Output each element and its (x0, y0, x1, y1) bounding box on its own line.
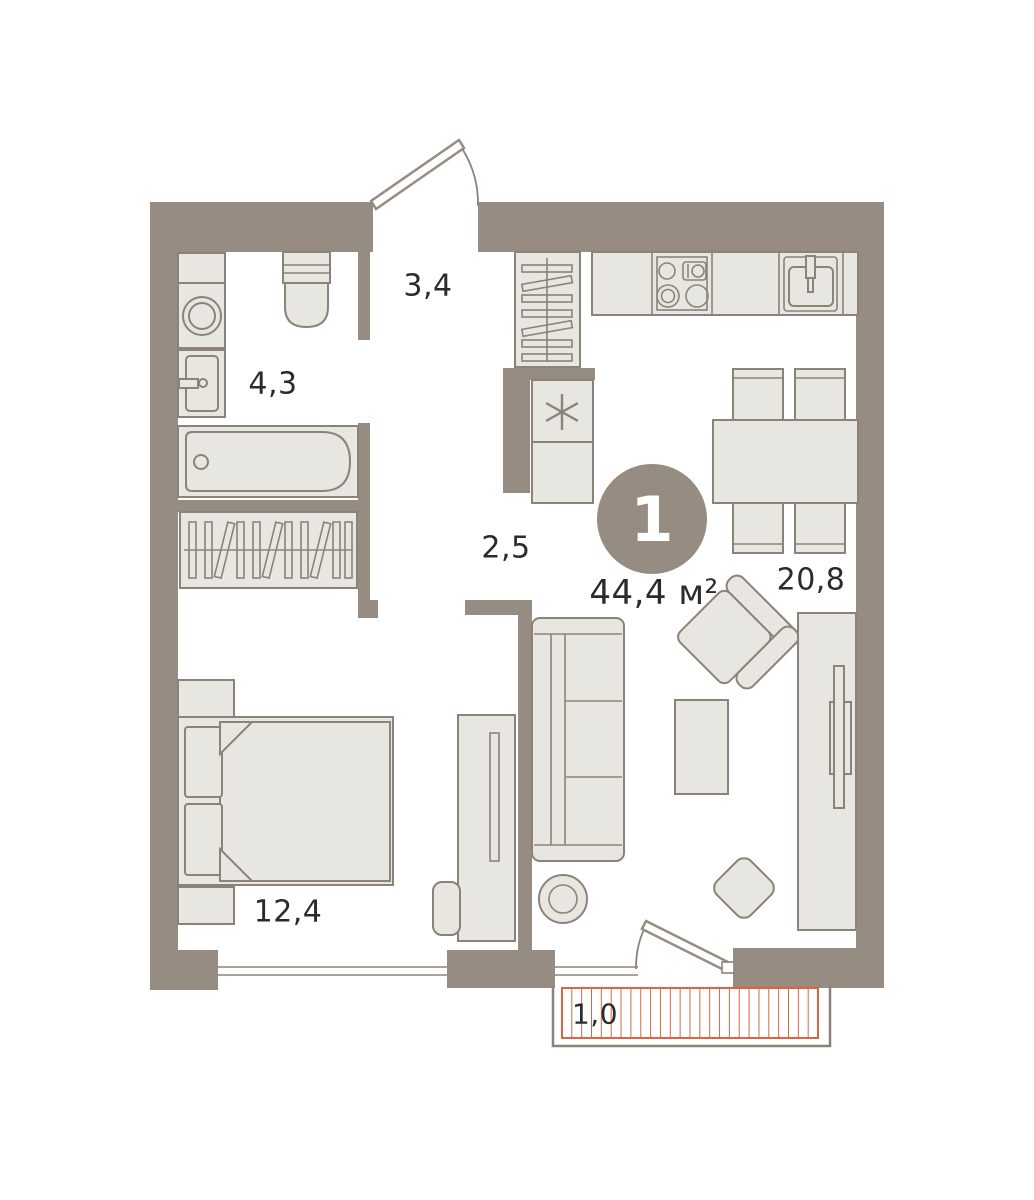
room-label-kitchen-living: 20,8 (777, 563, 846, 598)
pouf (710, 854, 778, 922)
room-count-number: 1 (630, 483, 673, 556)
sofa (532, 618, 624, 861)
room-count-badge: 1 (597, 464, 707, 574)
side-table (539, 875, 587, 923)
bathroom-cabinet (178, 253, 225, 283)
bed (178, 717, 393, 885)
bedroom-window (218, 967, 447, 975)
tv-sideboard (798, 613, 856, 930)
balcony-door (636, 921, 734, 973)
room-label-balcony: 1,0 (572, 998, 618, 1031)
dining-table (713, 420, 858, 503)
pillow (185, 804, 222, 875)
nightstand-bottom (178, 887, 234, 924)
stool (433, 882, 460, 935)
pillow (185, 727, 222, 797)
living-room-window (555, 967, 638, 975)
kitchen-cabinet (532, 442, 593, 503)
floor-plan: 3,4 4,3 2,5 20,8 12,4 1,0 44,4 м² 1 (0, 0, 1034, 1200)
washing-machine (178, 283, 225, 348)
entrance-wardrobe (515, 252, 580, 367)
entrance-door (371, 140, 478, 209)
total-area-label: 44,4 м² (589, 573, 718, 613)
room-label-hallway: 3,4 (403, 269, 452, 304)
bathroom-sink (178, 350, 225, 417)
toilet (283, 252, 330, 327)
tv-screen (834, 666, 844, 808)
floor-plan-drawing (0, 0, 1034, 1200)
room-label-bathroom: 4,3 (248, 367, 297, 402)
bedroom-closet (180, 512, 357, 588)
nightstand-top (178, 680, 234, 717)
dining-chairs-bottom (733, 503, 845, 553)
room-label-corridor: 2,5 (481, 531, 530, 566)
coffee-table (675, 700, 728, 794)
dining-chairs-top (733, 369, 845, 420)
room-label-bedroom: 12,4 (254, 895, 323, 930)
bedroom-desk-unit (433, 715, 515, 941)
bathtub (178, 426, 358, 497)
refrigerator (532, 380, 593, 503)
